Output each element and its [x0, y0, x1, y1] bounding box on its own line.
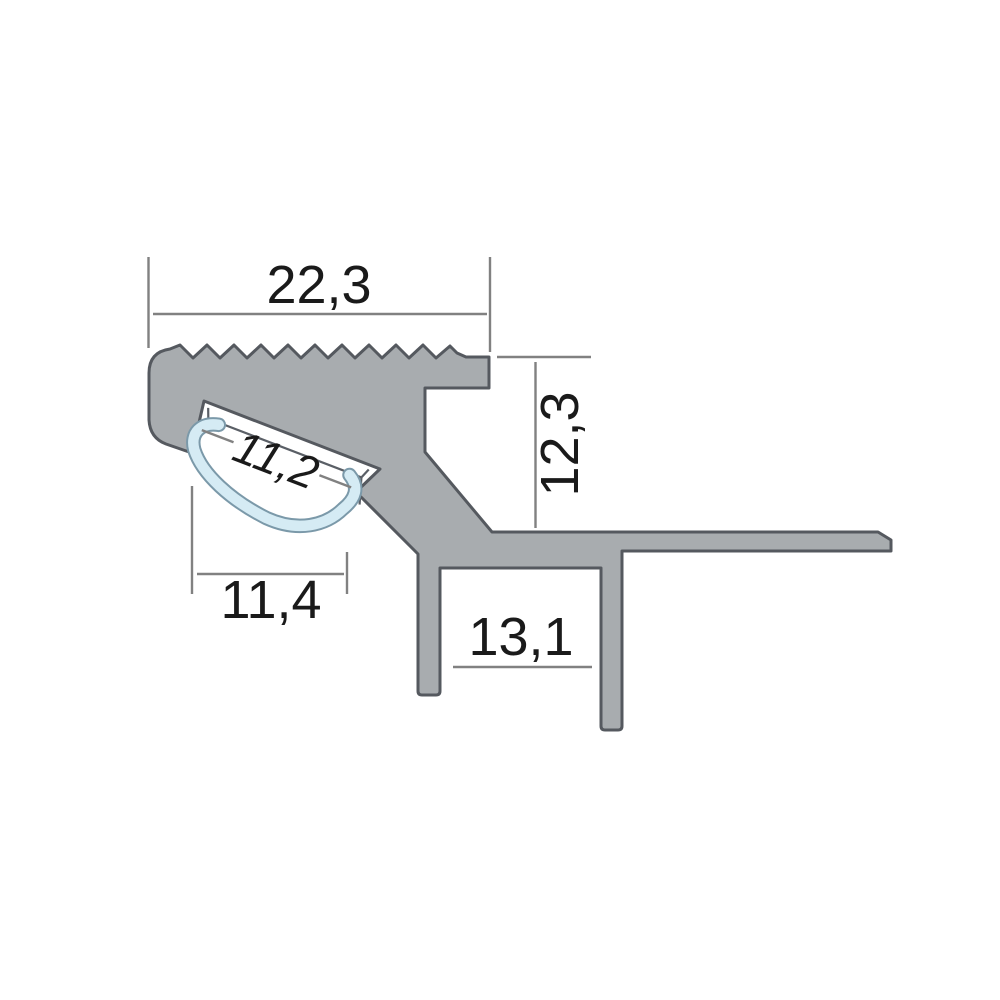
dimension-right-height: 12,3 [497, 357, 591, 528]
dimension-label-right-height: 12,3 [530, 391, 590, 496]
profile-body [149, 345, 891, 730]
dimension-label-top-width: 22,3 [266, 255, 371, 315]
dimension-top-width: 22,3 [149, 255, 491, 352]
profile-drawing: 11,2 22,3 12,3 11,4 13,1 [0, 0, 1000, 1000]
dimension-nose-bottom-width: 11,4 [192, 486, 347, 630]
dimension-pocket-width: 13,1 [453, 607, 592, 667]
dimension-label-pocket-width: 13,1 [468, 607, 573, 667]
dimension-label-nose-bottom-width: 11,4 [220, 570, 321, 630]
technical-drawing-canvas: 11,2 22,3 12,3 11,4 13,1 [0, 0, 1000, 1000]
